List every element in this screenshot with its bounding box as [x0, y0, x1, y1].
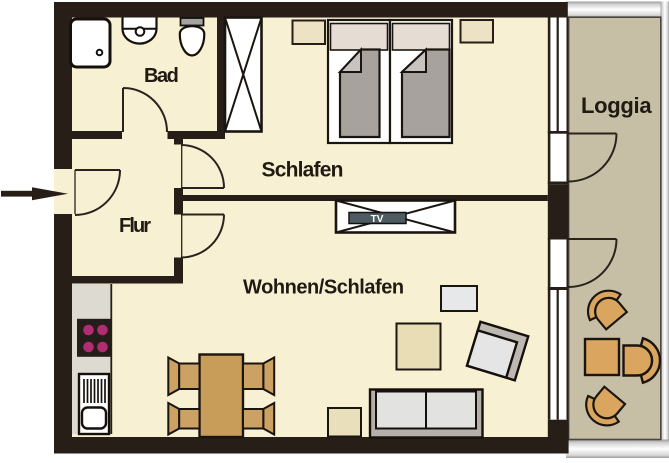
svg-text:TV: TV [371, 214, 384, 225]
svg-text:Bad: Bad [144, 65, 178, 87]
svg-text:Wohnen/Schlafen: Wohnen/Schlafen [243, 277, 404, 299]
svg-text:Loggia: Loggia [581, 93, 652, 118]
svg-text:Schlafen: Schlafen [262, 159, 343, 182]
svg-text:Flur: Flur [119, 215, 151, 237]
